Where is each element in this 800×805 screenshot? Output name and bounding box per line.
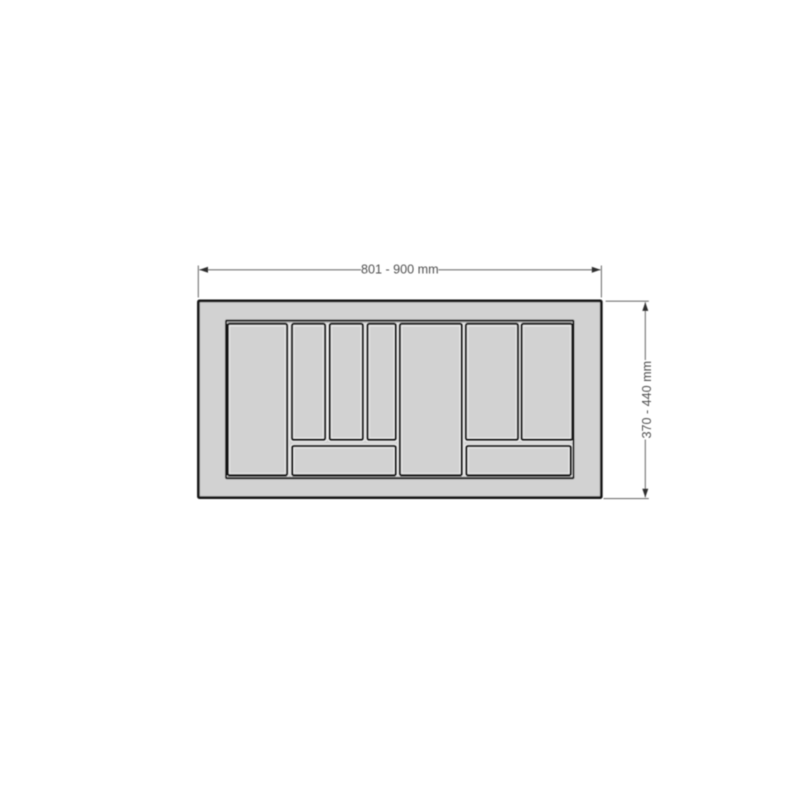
svg-text:370 - 440 mm: 370 - 440 mm xyxy=(640,361,654,439)
svg-text:801 - 900 mm: 801 - 900 mm xyxy=(361,263,439,277)
